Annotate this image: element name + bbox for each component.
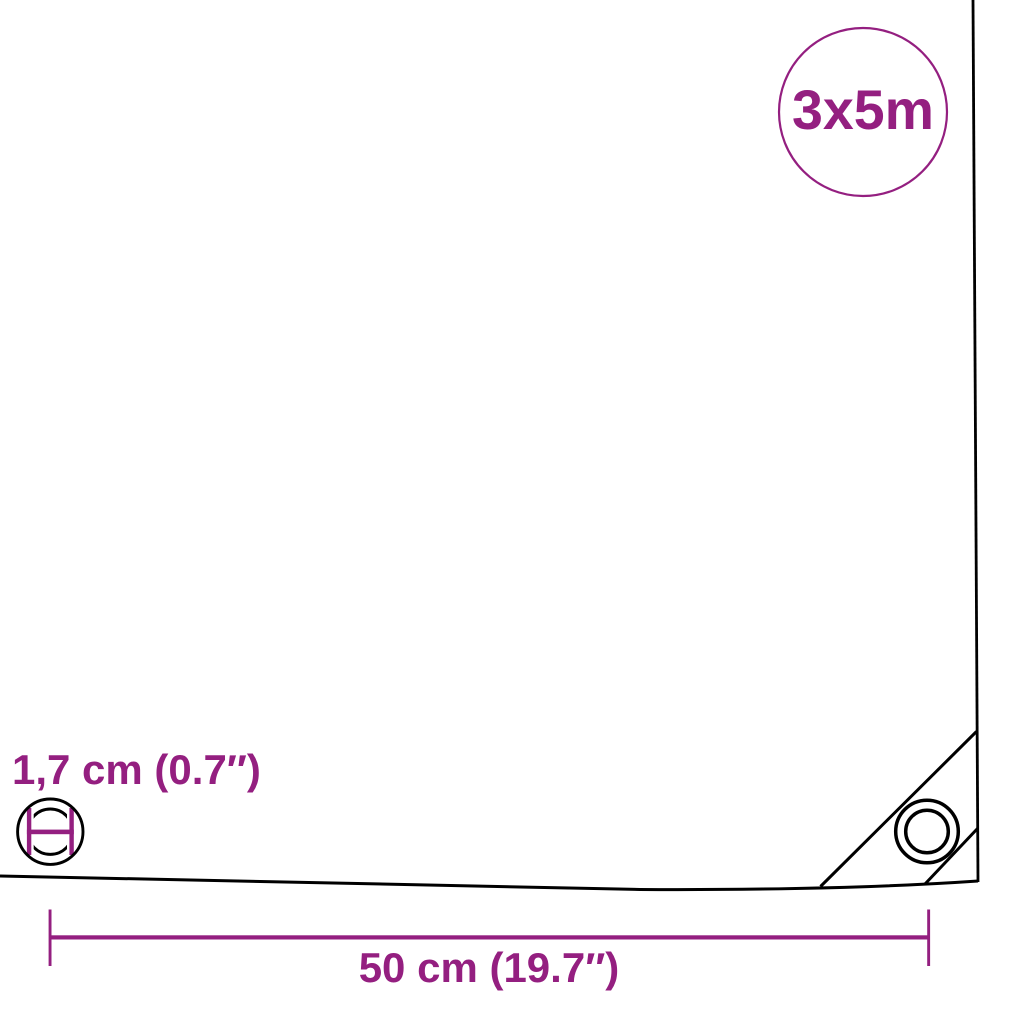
svg-text:50 cm (19.7″): 50 cm (19.7″) [359,944,620,991]
svg-text:3x5m: 3x5m [792,79,934,141]
svg-text:1,7 cm (0.7″): 1,7 cm (0.7″) [12,746,261,793]
